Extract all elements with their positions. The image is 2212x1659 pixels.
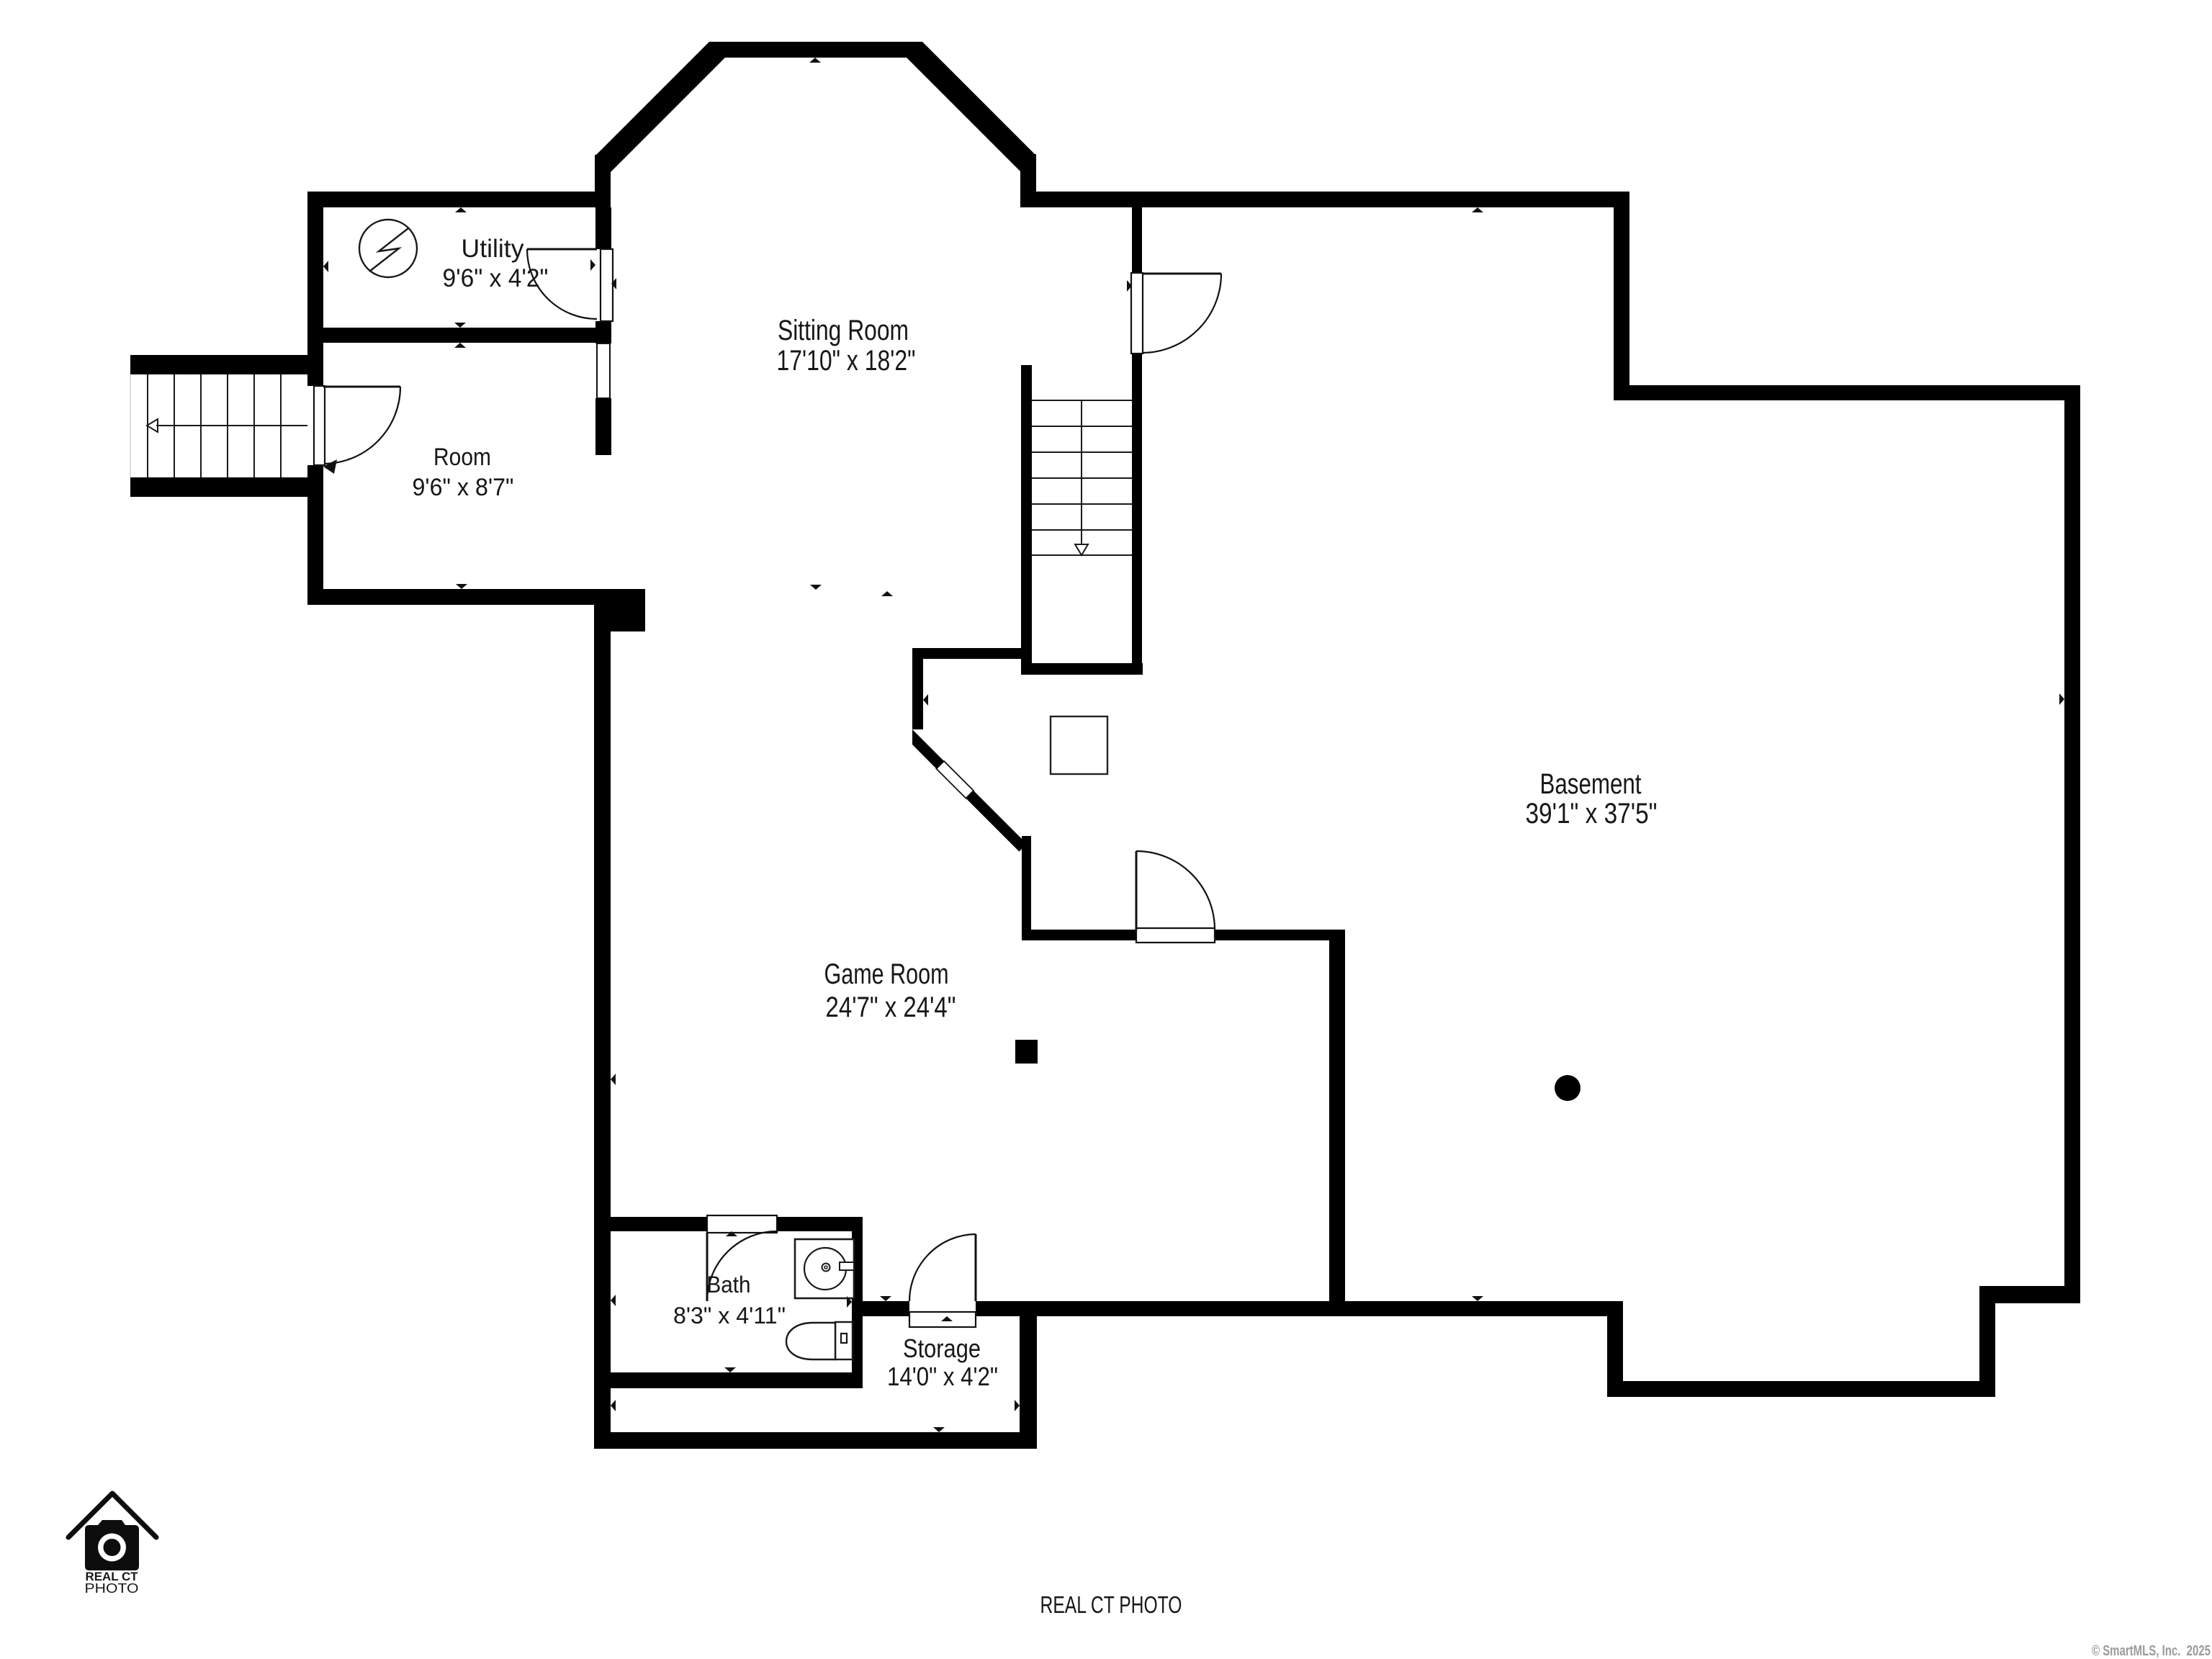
svg-text:39'1" x 37'5": 39'1" x 37'5" [1526, 798, 1658, 829]
svg-text:17'10" x 18'2": 17'10" x 18'2" [777, 345, 916, 377]
svg-text:Room: Room [433, 444, 491, 471]
svg-text:24'7" x 24'4": 24'7" x 24'4" [826, 992, 956, 1023]
svg-text:Storage: Storage [903, 1334, 981, 1363]
svg-text:8'3" x 4'11": 8'3" x 4'11" [673, 1303, 786, 1328]
svg-text:PHOTO: PHOTO [85, 1581, 139, 1596]
svg-text:Utility: Utility [462, 235, 524, 263]
svg-text:9'6" x 4'2": 9'6" x 4'2" [443, 264, 549, 292]
svg-text:9'6" x 8'7": 9'6" x 8'7" [413, 474, 514, 501]
svg-text:Bath: Bath [707, 1272, 751, 1298]
svg-text:14'0" x 4'2": 14'0" x 4'2" [887, 1362, 998, 1391]
svg-text:REAL CT PHOTO: REAL CT PHOTO [1040, 1591, 1182, 1618]
svg-text:Sitting Room: Sitting Room [778, 315, 909, 346]
svg-text:© SmartMLS, Inc. 2025: © SmartMLS, Inc. 2025 [2092, 1643, 2211, 1659]
svg-text:Basement: Basement [1540, 768, 1642, 800]
svg-text:Game Room: Game Room [824, 958, 949, 990]
